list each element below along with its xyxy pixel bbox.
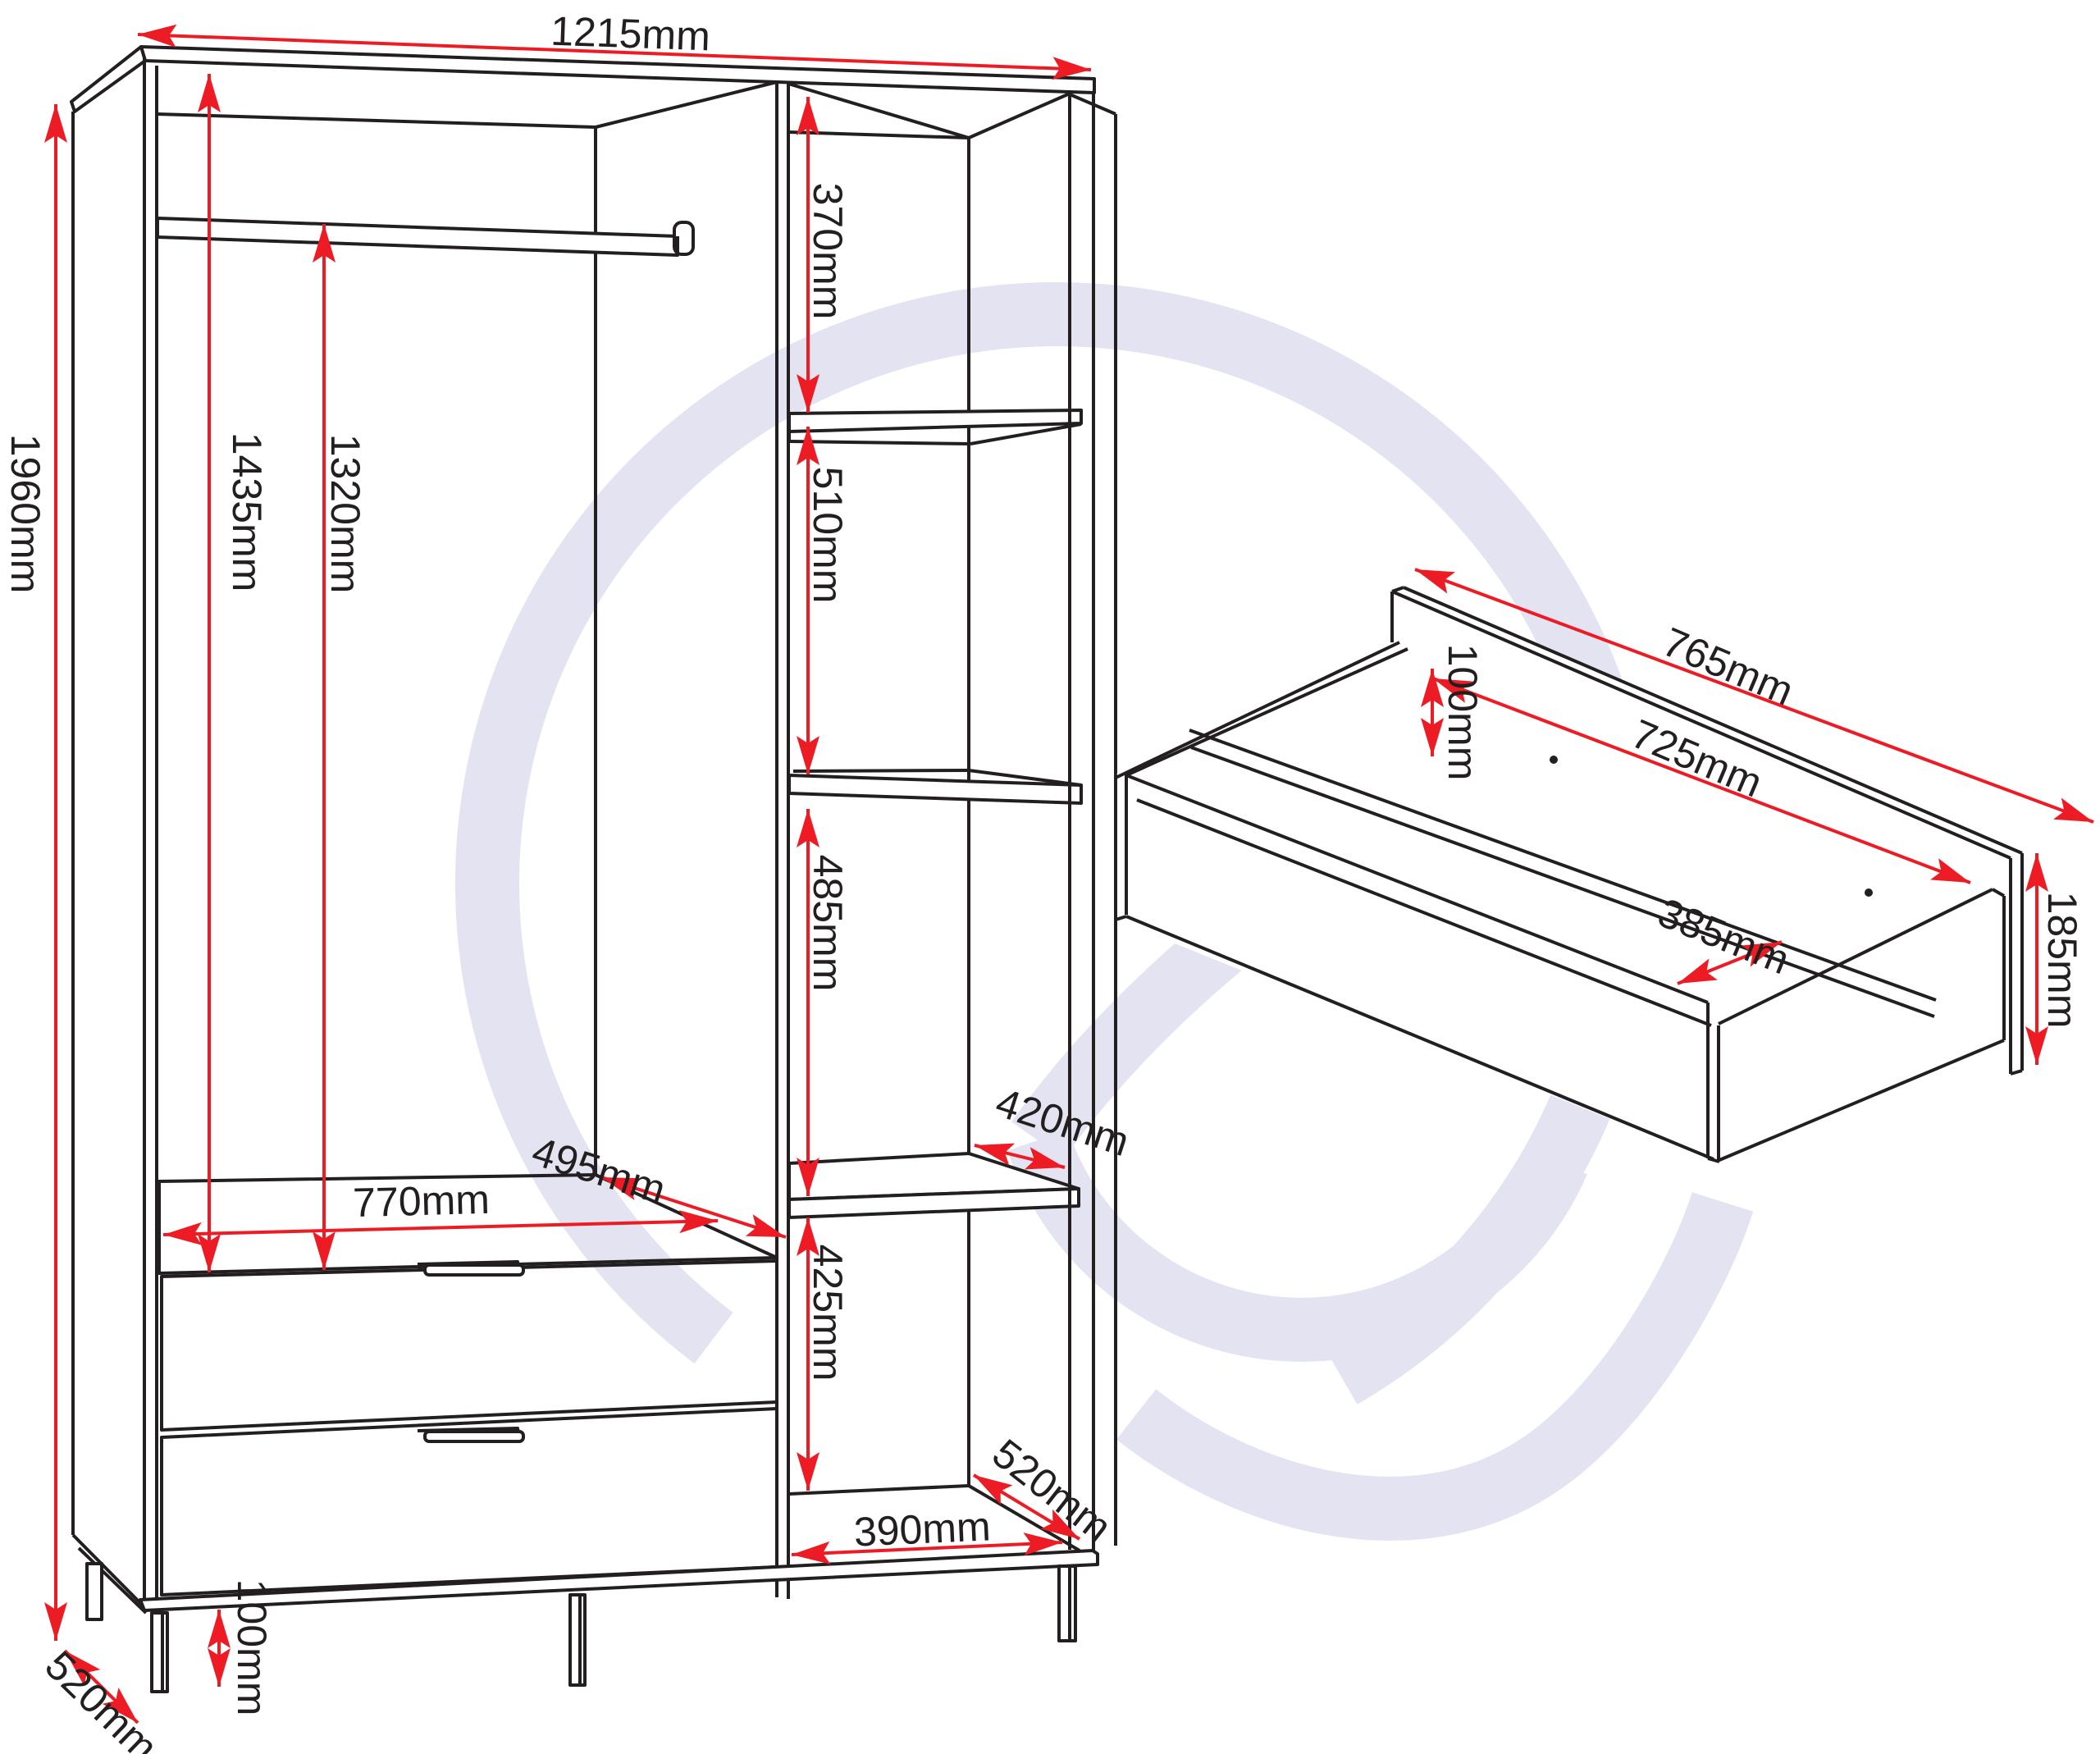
svg-text:100mm: 100mm [1440, 644, 1486, 781]
svg-text:770mm: 770mm [352, 1176, 490, 1226]
svg-text:1960mm: 1960mm [2, 434, 48, 594]
svg-text:510mm: 510mm [805, 467, 851, 604]
svg-text:1320mm: 1320mm [322, 434, 368, 594]
svg-text:370mm: 370mm [805, 183, 851, 320]
svg-text:185mm: 185mm [2039, 892, 2085, 1029]
svg-text:1215mm: 1215mm [550, 8, 710, 60]
svg-text:390mm: 390mm [853, 1503, 992, 1555]
svg-text:1435mm: 1435mm [224, 432, 270, 592]
svg-text:425mm: 425mm [805, 1245, 851, 1382]
svg-text:100mm: 100mm [229, 1579, 275, 1716]
svg-text:485mm: 485mm [805, 855, 851, 992]
